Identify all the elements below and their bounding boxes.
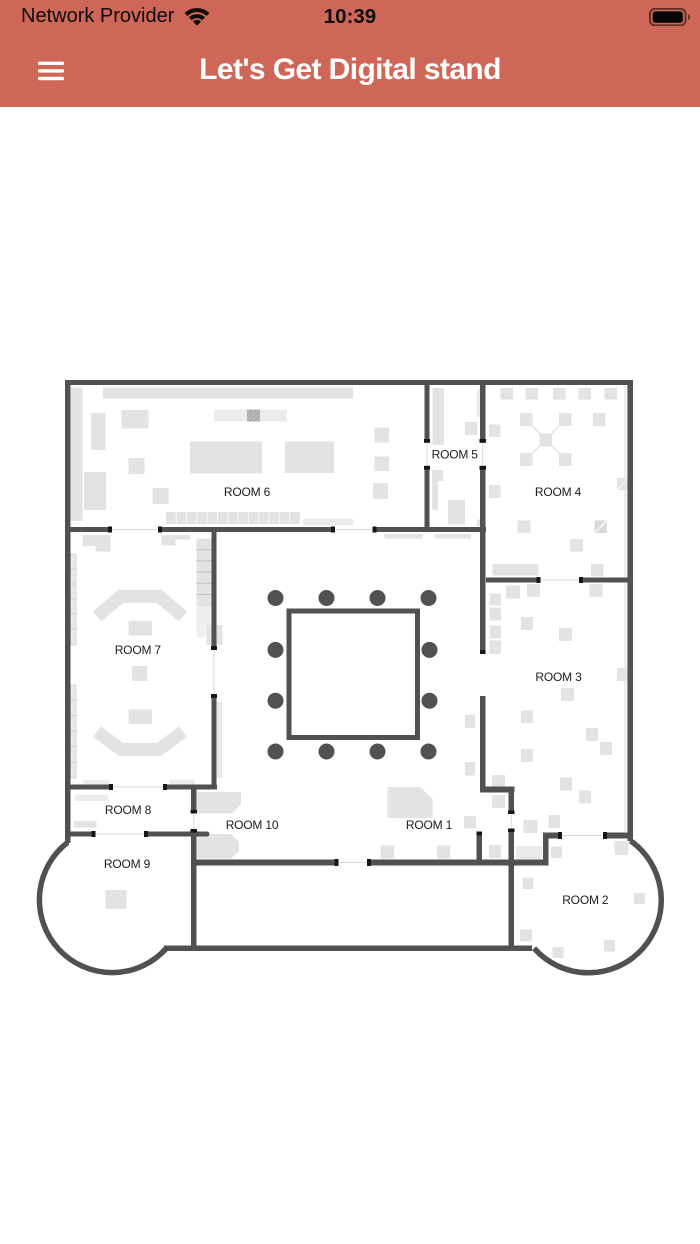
svg-text:ROOM 9: ROOM 9 <box>104 857 151 871</box>
svg-text:ROOM 4: ROOM 4 <box>535 485 582 499</box>
svg-text:ROOM 10: ROOM 10 <box>226 818 279 832</box>
svg-text:ROOM 3: ROOM 3 <box>535 670 582 684</box>
svg-text:ROOM 5: ROOM 5 <box>432 448 479 462</box>
svg-text:ROOM 2: ROOM 2 <box>562 893 609 907</box>
svg-text:ROOM 1: ROOM 1 <box>406 818 453 832</box>
svg-text:ROOM 6: ROOM 6 <box>224 485 271 499</box>
svg-text:ROOM 7: ROOM 7 <box>115 643 162 657</box>
svg-text:ROOM 8: ROOM 8 <box>105 803 152 817</box>
